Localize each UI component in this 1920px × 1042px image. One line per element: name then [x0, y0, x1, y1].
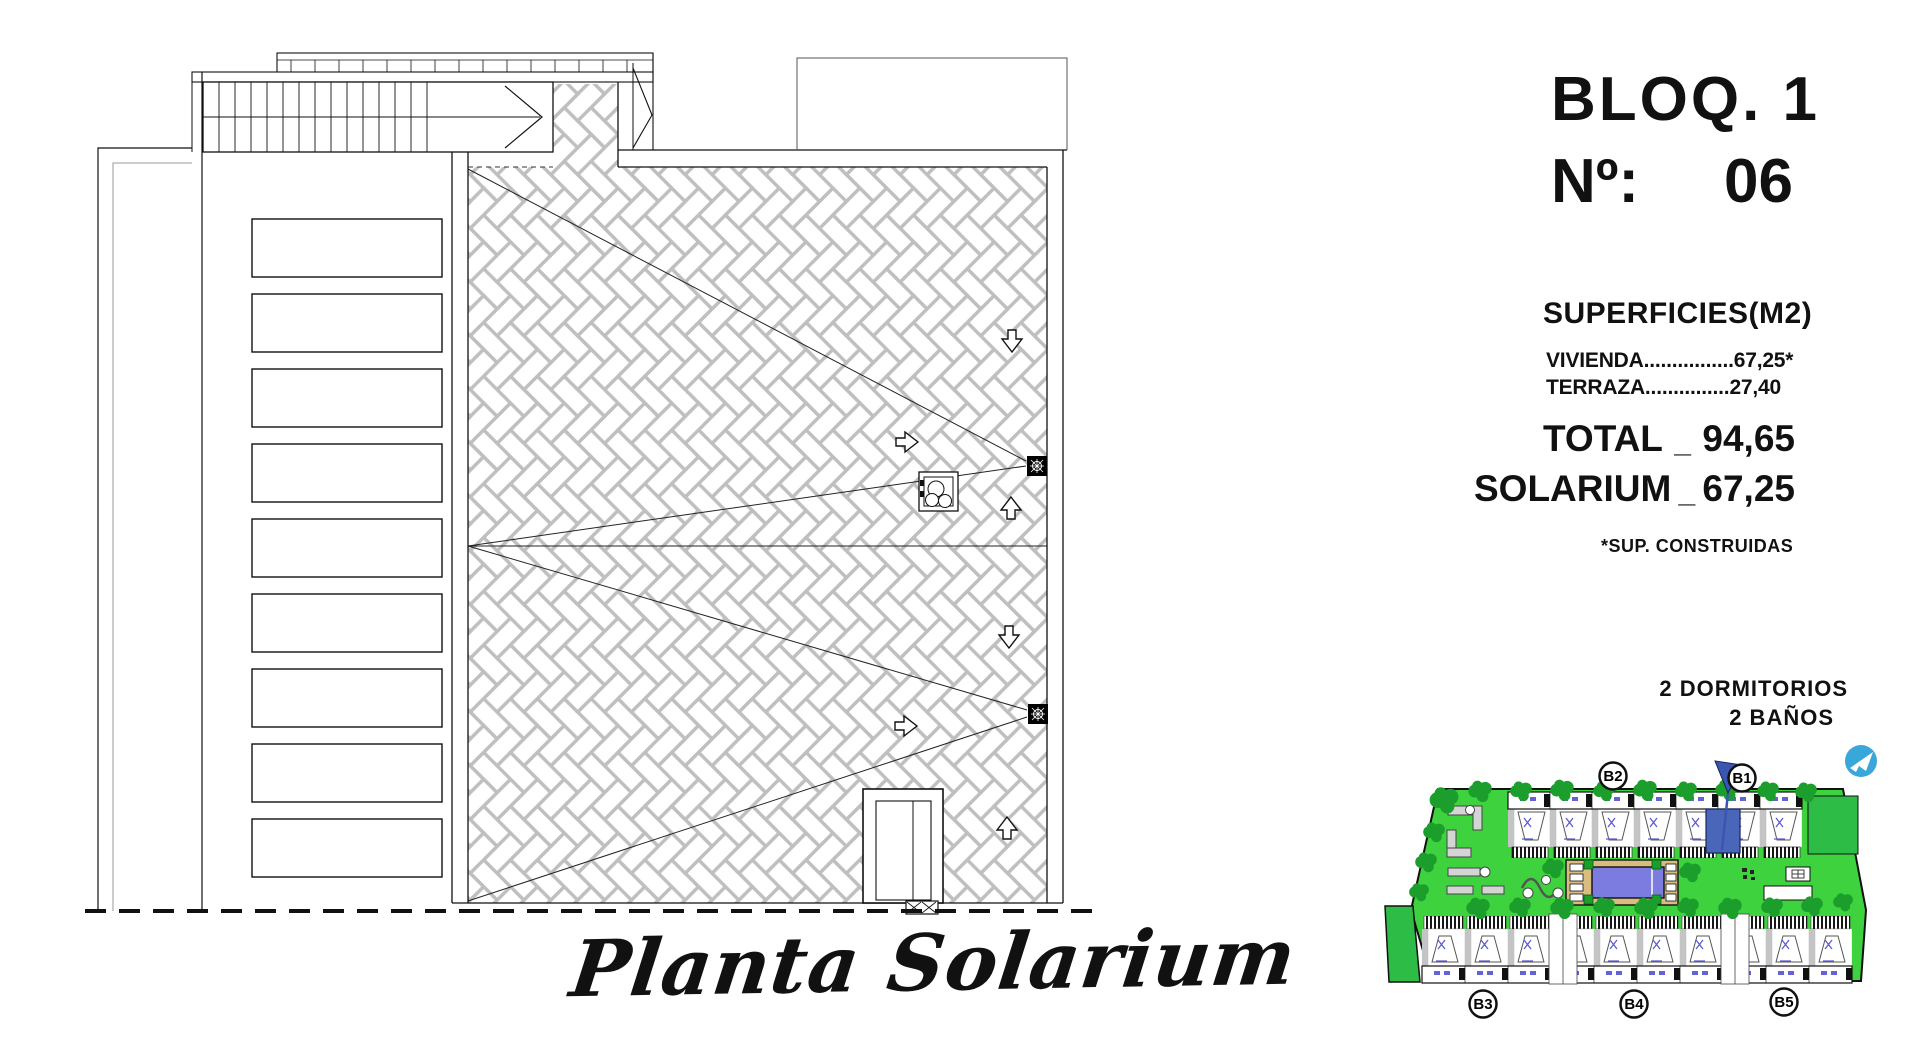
unit-number-label: Nº: — [1551, 146, 1639, 217]
total-label: TOTAL — [1543, 418, 1663, 460]
svg-text:B4: B4 — [1624, 996, 1644, 1013]
shower-tray-symbol — [919, 472, 958, 511]
surface-vivienda: VIVIENDA................67,25* — [1546, 349, 1793, 373]
block-label-b2: B2 — [1600, 763, 1627, 790]
surface-terraza: TERRAZA...............27,40 — [1546, 376, 1781, 400]
upper-floor-outline — [797, 58, 1067, 150]
surface-solarium-row: SOLARIUM _ 67,25 — [1474, 468, 1795, 510]
paper-plane-icon — [1845, 745, 1877, 777]
solarium-floor-hatch — [468, 84, 1047, 903]
surface-total-row: TOTAL _ 94,65 — [1543, 418, 1795, 460]
svg-text:B2: B2 — [1603, 768, 1622, 785]
svg-text:B3: B3 — [1473, 996, 1492, 1013]
top-unit-row — [1508, 792, 1802, 858]
site-wedge — [1385, 906, 1420, 982]
surfaces-footnote: *SUP. CONSTRUIDAS — [1601, 536, 1793, 557]
pool-area — [1566, 860, 1678, 905]
bottom-unit-row — [1422, 914, 1852, 984]
unit-number-row: Nº: 06 — [1551, 146, 1793, 217]
solarium-separator: _ — [1679, 476, 1696, 510]
floor-drain — [1028, 704, 1048, 724]
surfaces-title: SUPERFICIES(M2) — [1543, 297, 1812, 331]
plot-boundary-left — [98, 72, 202, 911]
floor-drain — [1027, 456, 1047, 476]
block-title: BLOQ. 1 — [1551, 64, 1820, 135]
terrace-door — [863, 789, 943, 914]
block-label-b3: B3 — [1470, 991, 1497, 1018]
solarium-value: 67,25 — [1702, 468, 1795, 510]
block-label-b5: B5 — [1771, 989, 1798, 1016]
plan-caption: Planta Solarium — [566, 912, 1302, 1016]
solarium-label: SOLARIUM — [1474, 468, 1671, 510]
site-plan: B2 B1 B3 B4 B5 — [1385, 745, 1877, 1018]
total-value: 94,65 — [1702, 418, 1795, 460]
feature-banos: 2 BAÑOS — [1729, 705, 1834, 731]
total-separator: _ — [1674, 426, 1691, 460]
site-green-block — [1808, 796, 1858, 854]
pool-water — [1592, 867, 1664, 898]
roof-parapet — [277, 53, 653, 73]
svg-text:B5: B5 — [1774, 994, 1793, 1011]
architectural-sheet: B2 B1 B3 B4 B5 BLOQ. 1 Nº: 06 SUPERFICIE… — [0, 0, 1920, 1042]
storage-rooms-column — [252, 219, 442, 877]
block-label-b4: B4 — [1621, 991, 1648, 1018]
svg-text:B1: B1 — [1732, 770, 1751, 787]
block-label-b1: B1 — [1729, 765, 1756, 792]
feature-dormitorios: 2 DORMITORIOS — [1659, 676, 1848, 702]
top-wall-band — [192, 72, 653, 82]
unit-number-value: 06 — [1724, 146, 1793, 217]
